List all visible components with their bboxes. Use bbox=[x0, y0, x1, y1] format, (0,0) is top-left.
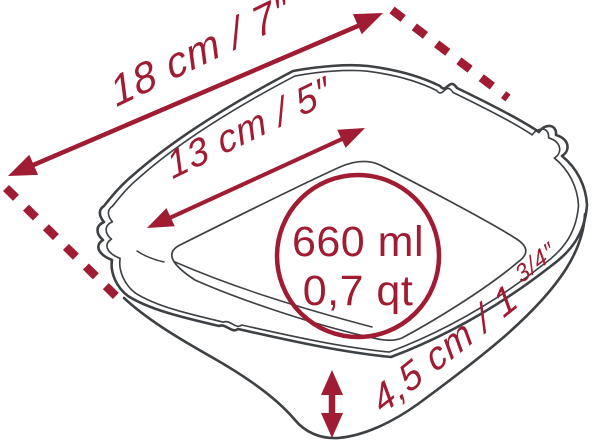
outer-width-arrowhead-right bbox=[353, 13, 383, 34]
inner-width-arrowhead-right bbox=[337, 128, 365, 148]
dimension-outer-width: 18 cm / 7″ bbox=[6, 0, 508, 304]
product-dimension-diagram: 18 cm / 7″ 13 cm / 5″ 660 ml 0,7 qt 4,5 … bbox=[0, 0, 600, 441]
diagram-canvas: 18 cm / 7″ 13 cm / 5″ 660 ml 0,7 qt 4,5 … bbox=[0, 0, 600, 441]
height-arrowhead-down bbox=[321, 413, 343, 438]
left-handle-accent bbox=[137, 251, 164, 262]
capacity-volume-qt: 0,7 qt bbox=[303, 267, 414, 315]
inner-width-label: 13 cm / 5″ bbox=[162, 68, 337, 188]
height-arrowhead-up bbox=[321, 370, 343, 395]
inner-width-arrowhead-left bbox=[147, 208, 175, 228]
capacity-volume-ml: 660 ml bbox=[292, 218, 424, 266]
outer-width-arrowhead-left bbox=[8, 155, 38, 176]
capacity-badge: 660 ml 0,7 qt bbox=[277, 175, 439, 337]
